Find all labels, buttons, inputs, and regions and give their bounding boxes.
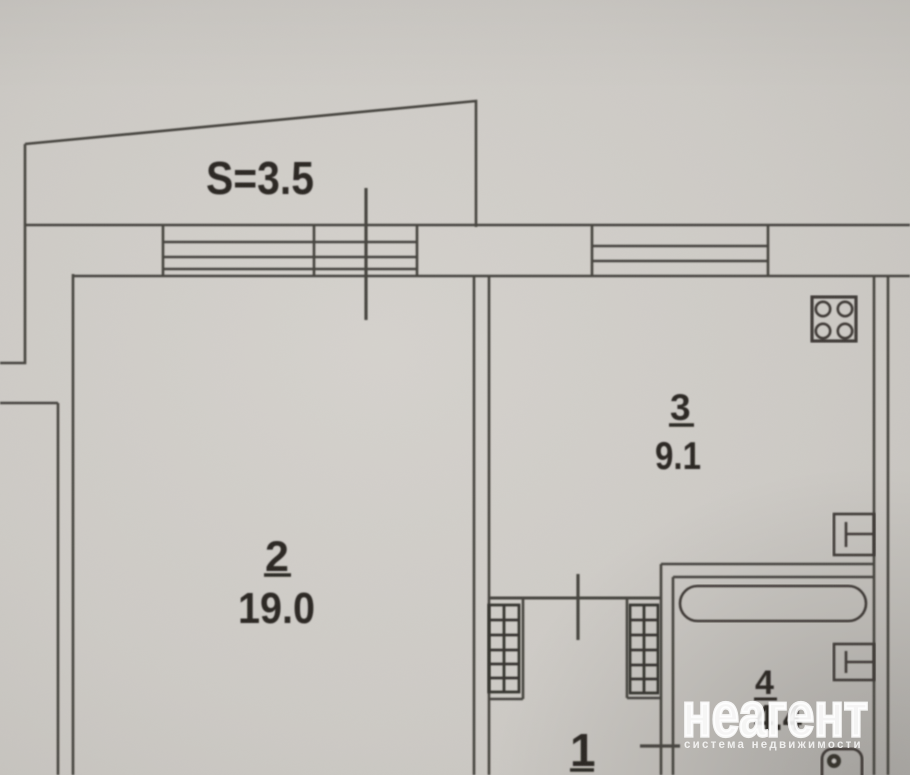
svg-text:система недвижимости: система недвижимости (684, 739, 863, 751)
